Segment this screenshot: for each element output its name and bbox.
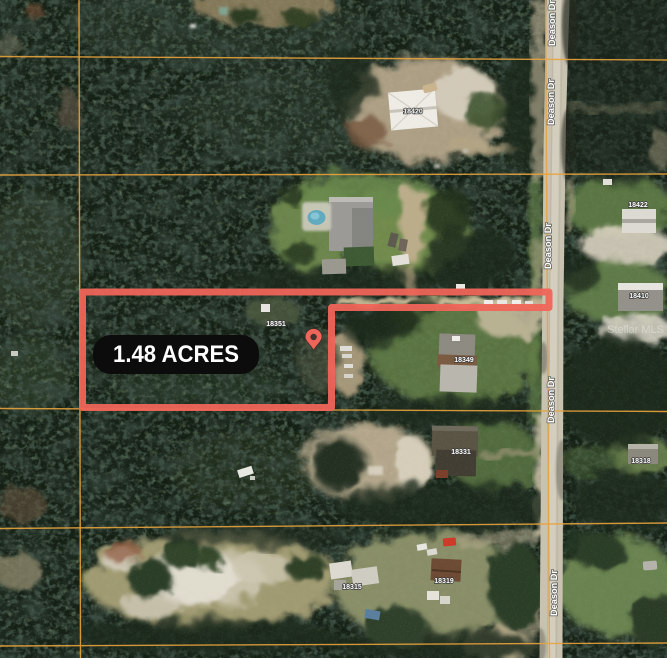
svg-text:18410: 18410: [629, 293, 649, 300]
svg-text:18420: 18420: [403, 109, 423, 116]
svg-text:Stellar MLS: Stellar MLS: [607, 324, 664, 336]
svg-text:18319: 18319: [434, 578, 454, 585]
svg-text:18318: 18318: [631, 458, 651, 465]
svg-text:Deason Dr: Deason Dr: [546, 376, 556, 423]
svg-text:18351: 18351: [266, 321, 286, 328]
svg-text:18349: 18349: [454, 357, 474, 364]
svg-text:18331: 18331: [451, 449, 471, 456]
svg-text:Deason Dr: Deason Dr: [546, 78, 556, 125]
svg-text:Deason Dr: Deason Dr: [549, 569, 559, 616]
svg-text:Deason Dr: Deason Dr: [547, 0, 557, 46]
svg-text:18315: 18315: [342, 584, 362, 591]
svg-text:18422: 18422: [628, 202, 648, 209]
svg-text:1.48 ACRES: 1.48 ACRES: [113, 341, 239, 368]
svg-text:Deason Dr: Deason Dr: [543, 222, 553, 269]
